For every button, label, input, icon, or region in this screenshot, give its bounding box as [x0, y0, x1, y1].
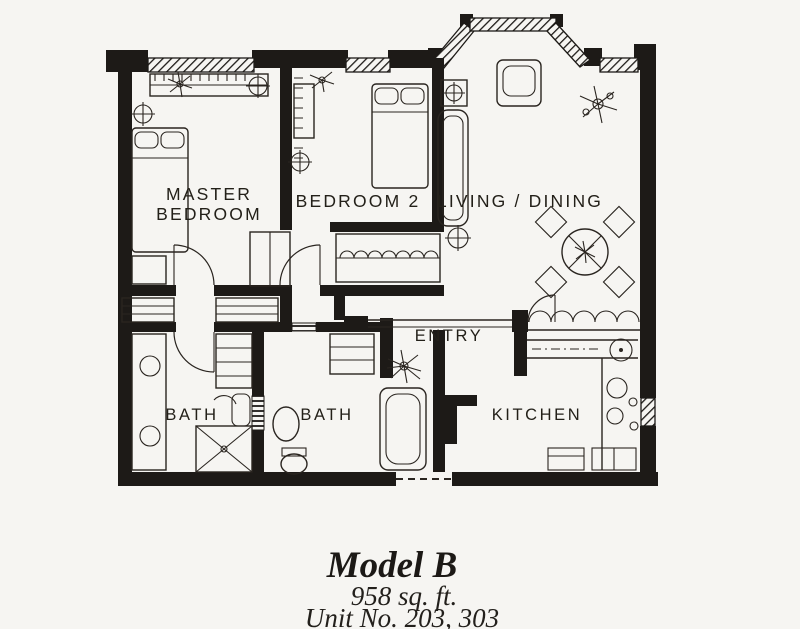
tv-console-icon	[441, 80, 467, 106]
closet-rod-clothes	[336, 234, 440, 282]
bath-kitchen-wall	[433, 330, 445, 472]
window-master-icon	[148, 58, 254, 72]
dining-chair-icon	[535, 206, 566, 237]
dining-chair-icon	[603, 206, 634, 237]
bathtub-icon	[380, 388, 426, 470]
bedroom2-door-arc	[280, 245, 320, 285]
wall-master-bedroom2	[280, 58, 292, 230]
right-exterior-wall	[640, 44, 656, 398]
room-master-bedroom: MASTER BEDROOM	[131, 72, 303, 286]
kitchen-door-jamb	[445, 406, 457, 444]
dining-chair-icon	[535, 266, 566, 297]
bay-window-segment	[547, 23, 590, 67]
shower-icon	[196, 426, 252, 472]
floor-plan-drawing: MASTER BEDROOM BEDROOM 2	[0, 0, 800, 629]
doors	[174, 245, 555, 430]
caption-model-name: Model B	[326, 545, 458, 586]
wall-hatch-ticks	[294, 78, 303, 158]
bath-divider-wall	[252, 430, 264, 472]
master-door-arc	[174, 245, 214, 285]
left-exterior-wall	[118, 56, 132, 486]
ceiling-fan-icon	[445, 225, 471, 251]
master-bedroom-label-line2: BEDROOM	[156, 204, 262, 224]
sink-icon	[140, 356, 160, 376]
window-bedroom2-icon	[346, 58, 390, 72]
wall-stub	[334, 296, 345, 320]
floor-plan-page: MASTER BEDROOM BEDROOM 2	[0, 0, 800, 629]
bath-top-wall	[214, 322, 280, 332]
bath-right-label: BATH	[300, 406, 353, 424]
dresser-icon	[132, 256, 166, 284]
dining-table-icon	[562, 229, 608, 275]
window-living-icon	[600, 58, 638, 72]
bath-door-arc	[174, 332, 214, 372]
entry-pillar	[512, 310, 528, 332]
ceiling-fan-icon	[246, 74, 270, 98]
room-kitchen: KITCHEN	[492, 339, 638, 470]
window-kitchen-icon	[641, 398, 655, 426]
closet-wall	[330, 222, 444, 232]
room-bedroom-2: BEDROOM 2	[288, 72, 440, 282]
caption: Model B 958 sq. ft. Unit No. 203, 303	[305, 545, 499, 629]
entry-side-wall	[514, 332, 527, 376]
wall-segment	[252, 50, 348, 68]
plant-icon	[580, 86, 617, 123]
ceiling-fan-icon	[131, 102, 155, 126]
bottom-exterior-wall	[452, 472, 658, 486]
dresser-icon	[294, 84, 314, 138]
wardrobe-icon	[250, 232, 290, 286]
room-bath-right: BATH	[273, 334, 426, 474]
bedroom2-label: BEDROOM 2	[296, 191, 421, 211]
wall-stub	[280, 285, 292, 332]
wall-hatch-ticks	[155, 74, 245, 81]
linen-closet-shelves	[216, 334, 252, 388]
bath-top-wall	[118, 322, 176, 332]
pillow-icon	[401, 88, 424, 104]
sink-icon	[273, 407, 299, 441]
bed-icon	[372, 84, 428, 188]
kitchen-counter-right	[602, 358, 638, 470]
closet-shelves	[216, 298, 278, 322]
pillow-icon	[161, 132, 184, 148]
toilet-icon	[281, 448, 307, 474]
bath-left-label: BATH	[165, 406, 218, 424]
kitchen-door-jamb	[445, 395, 477, 406]
hall-wall	[320, 285, 444, 296]
stove-icon	[548, 448, 584, 470]
bath-divider-wall	[252, 332, 264, 396]
room-bath-left: BATH	[132, 334, 252, 472]
entry-door-arc	[528, 295, 555, 322]
master-bedroom-label-line1: MASTER	[166, 184, 252, 204]
sink-icon	[607, 408, 623, 424]
refrigerator-icon	[592, 448, 636, 470]
living-dining-label: LIVING / DINING	[437, 191, 603, 211]
vanity-icon	[132, 334, 166, 470]
dining-chair-icon	[603, 266, 634, 297]
room-living-dining: LIVING / DINING	[437, 60, 640, 330]
bay-window-segment	[470, 18, 556, 31]
pocket-door-icon	[252, 396, 264, 430]
vanity-icon	[330, 334, 374, 374]
pillow-icon	[135, 132, 158, 148]
pillow-icon	[375, 88, 398, 104]
armchair-icon	[497, 60, 541, 106]
sink-icon	[214, 394, 250, 426]
hall-wall	[118, 285, 176, 296]
window-seat-sofa-icon	[528, 311, 640, 330]
kitchen-label: KITCHEN	[492, 406, 583, 424]
sink-icon	[140, 426, 160, 446]
pocket-door-icon	[292, 323, 316, 331]
caption-unit-numbers: Unit No. 203, 303	[305, 603, 499, 629]
entry-label: ENTRY	[415, 327, 484, 345]
bottom-exterior-wall	[118, 472, 396, 486]
sink-icon	[607, 378, 627, 398]
